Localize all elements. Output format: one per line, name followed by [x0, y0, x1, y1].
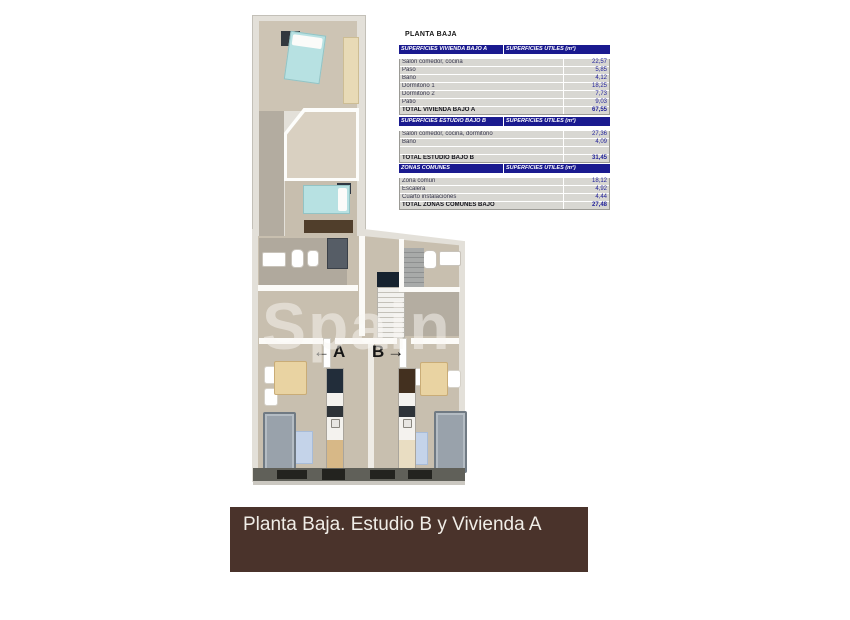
table-row: Cuarto instalaciones4,44 — [400, 194, 609, 202]
sink-2 — [439, 251, 461, 266]
table-header-units: SUPERFICIES UTILES (m²) — [504, 164, 610, 173]
toilet-2 — [423, 250, 437, 269]
table-header-units: SUPERFICIES UTILES (m²) — [504, 117, 610, 126]
row-label: Cuarto instalaciones — [400, 194, 563, 201]
row-label: Patio — [400, 99, 563, 106]
sink-basin — [403, 419, 412, 428]
kitchen-sink — [327, 417, 343, 429]
total-label: TOTAL ZONAS COMUNES BAJO — [400, 202, 563, 209]
toilet — [291, 249, 304, 268]
unit-a-label: ← A — [313, 342, 345, 362]
common-zone-floor — [404, 292, 459, 336]
bed-dormitorio1 — [284, 31, 326, 85]
total-value: 27,48 — [563, 202, 609, 209]
kitchen-unit-a — [326, 368, 344, 476]
right-arrow-icon: → — [387, 342, 404, 362]
table-body: Salón comedor, cocina, dormitorio27,36 B… — [399, 131, 610, 163]
row-value: 4,92 — [563, 186, 609, 193]
counter — [327, 429, 343, 440]
row-label: Zona común — [400, 178, 563, 185]
interior-wall — [399, 239, 404, 288]
table-header-name: ZONAS COMUNES — [399, 164, 503, 173]
table-body: Salón comedor, cocina22,57 Paso5,85 Baño… — [399, 59, 610, 115]
page: ← A B → — [0, 0, 850, 620]
panel-title: PLANTA BAJA — [405, 31, 457, 38]
shower — [327, 238, 348, 269]
table-total-row: TOTAL VIVIENDA BAJO A67,55 — [400, 107, 609, 114]
rug-a — [293, 431, 313, 464]
caption-text: Planta Baja. Estudio B y Vivienda A — [243, 514, 542, 536]
interior-wall — [411, 338, 459, 344]
sink-basin — [331, 419, 340, 428]
fridge — [327, 369, 343, 393]
table-row: Salón comedor, cocina, dormitorio27,36 — [400, 131, 609, 139]
table-total-row: TOTAL ESTUDIO BAJO B31,45 — [400, 155, 609, 162]
row-value: 18,12 — [563, 178, 609, 185]
row-label: Baño — [400, 75, 563, 82]
row-value: 4,09 — [563, 139, 609, 146]
row-value: 18,25 — [563, 83, 609, 90]
table-body: Zona común18,12 Escalera4,92 Cuarto inst… — [399, 178, 610, 210]
row-label: Dormitorio 1 — [400, 83, 563, 90]
row-label: Baño — [400, 139, 563, 146]
row-value: 4,44 — [563, 194, 609, 201]
chair — [447, 370, 461, 388]
patio-floor — [287, 112, 356, 178]
interior-wall — [359, 236, 365, 336]
row-value: 4,12 — [563, 75, 609, 82]
dresser — [304, 220, 353, 233]
window — [277, 470, 307, 479]
table-row: Salón comedor, cocina22,57 — [400, 59, 609, 67]
sink — [262, 252, 286, 267]
row-label: Escalera — [400, 186, 563, 193]
row-value: 22,57 — [563, 59, 609, 66]
stairs-lower-flight — [377, 287, 405, 339]
entrance-door — [322, 469, 345, 480]
total-label: TOTAL ESTUDIO BAJO B — [400, 155, 563, 162]
table-row: Baño4,09 — [400, 139, 609, 147]
hob — [399, 406, 415, 417]
table-row: Baño4,12 — [400, 75, 609, 83]
row-value: 7,73 — [563, 91, 609, 98]
row-label: Dormitorio 2 — [400, 91, 563, 98]
table-header-units: SUPERFICIES UTILES (m²) — [504, 45, 610, 54]
total-value: 31,45 — [563, 155, 609, 162]
dining-table-b — [420, 362, 448, 396]
table-row: Escalera4,92 — [400, 186, 609, 194]
total-value: 67,55 — [563, 107, 609, 114]
row-value: 5,85 — [563, 67, 609, 74]
window — [370, 470, 395, 479]
table-row: Patio9,03 — [400, 99, 609, 107]
facade-sill — [253, 481, 465, 485]
fridge — [399, 369, 415, 393]
window — [408, 470, 432, 479]
total-label: TOTAL VIVIENDA BAJO A — [400, 107, 563, 114]
table-header: SUPERFICIES ESTUDIO BAJO B SUPERFICIES U… — [399, 117, 610, 126]
kitchen-sink — [399, 417, 415, 429]
stairs-upper-flight — [404, 248, 424, 288]
table-header-name: SUPERFICIES ESTUDIO BAJO B — [399, 117, 503, 126]
unit-a-letter: A — [333, 342, 345, 362]
table-header: ZONAS COMUNES SUPERFICIES UTILES (m²) — [399, 164, 610, 173]
row-label: Salón comedor, cocina — [400, 59, 563, 66]
kitchen-unit-b — [398, 368, 416, 476]
table-row: Dormitorio 118,25 — [400, 83, 609, 91]
table-row: Zona común18,12 — [400, 178, 609, 186]
table-zonas-comunes: ZONAS COMUNES SUPERFICIES UTILES (m²) Zo… — [399, 164, 610, 210]
left-arrow-icon: ← — [313, 342, 330, 362]
table-row: Paso5,85 — [400, 67, 609, 75]
counter — [327, 393, 343, 406]
row-label: Paso — [400, 67, 563, 74]
counter — [399, 393, 415, 406]
table-vivienda-bajo-a: SUPERFICIES VIVIENDA BAJO A SUPERFICIES … — [399, 45, 610, 115]
table-header: SUPERFICIES VIVIENDA BAJO A SUPERFICIES … — [399, 45, 610, 54]
dining-table-a — [274, 361, 307, 395]
interior-wall — [258, 285, 358, 291]
row-label: Salón comedor, cocina, dormitorio — [400, 131, 563, 138]
unit-b-letter: B — [372, 342, 384, 362]
pillow — [338, 188, 347, 211]
counter — [399, 429, 415, 440]
wardrobe — [343, 37, 359, 104]
table-total-row: TOTAL ZONAS COMUNES BAJO27,48 — [400, 202, 609, 209]
caption-banner: Planta Baja. Estudio B y Vivienda A — [230, 507, 588, 572]
row-label — [400, 147, 563, 154]
interior-wall — [399, 287, 460, 292]
bed-dormitorio2 — [303, 185, 350, 214]
hallway-floor — [259, 111, 284, 243]
sofa-a — [263, 412, 296, 473]
row-value: 27,36 — [563, 131, 609, 138]
row-value — [563, 147, 609, 154]
bidet — [307, 250, 319, 267]
table-header-name: SUPERFICIES VIVIENDA BAJO A — [399, 45, 503, 54]
sofa-b — [434, 411, 467, 473]
table-row-blank — [400, 147, 609, 155]
row-value: 9,03 — [563, 99, 609, 106]
pillow — [292, 34, 323, 49]
table-estudio-bajo-b: SUPERFICIES ESTUDIO BAJO B SUPERFICIES U… — [399, 117, 610, 163]
hob — [327, 406, 343, 417]
unit-b-label: B → — [372, 342, 404, 362]
table-row: Dormitorio 27,73 — [400, 91, 609, 99]
unit-divider-wall — [368, 344, 374, 468]
